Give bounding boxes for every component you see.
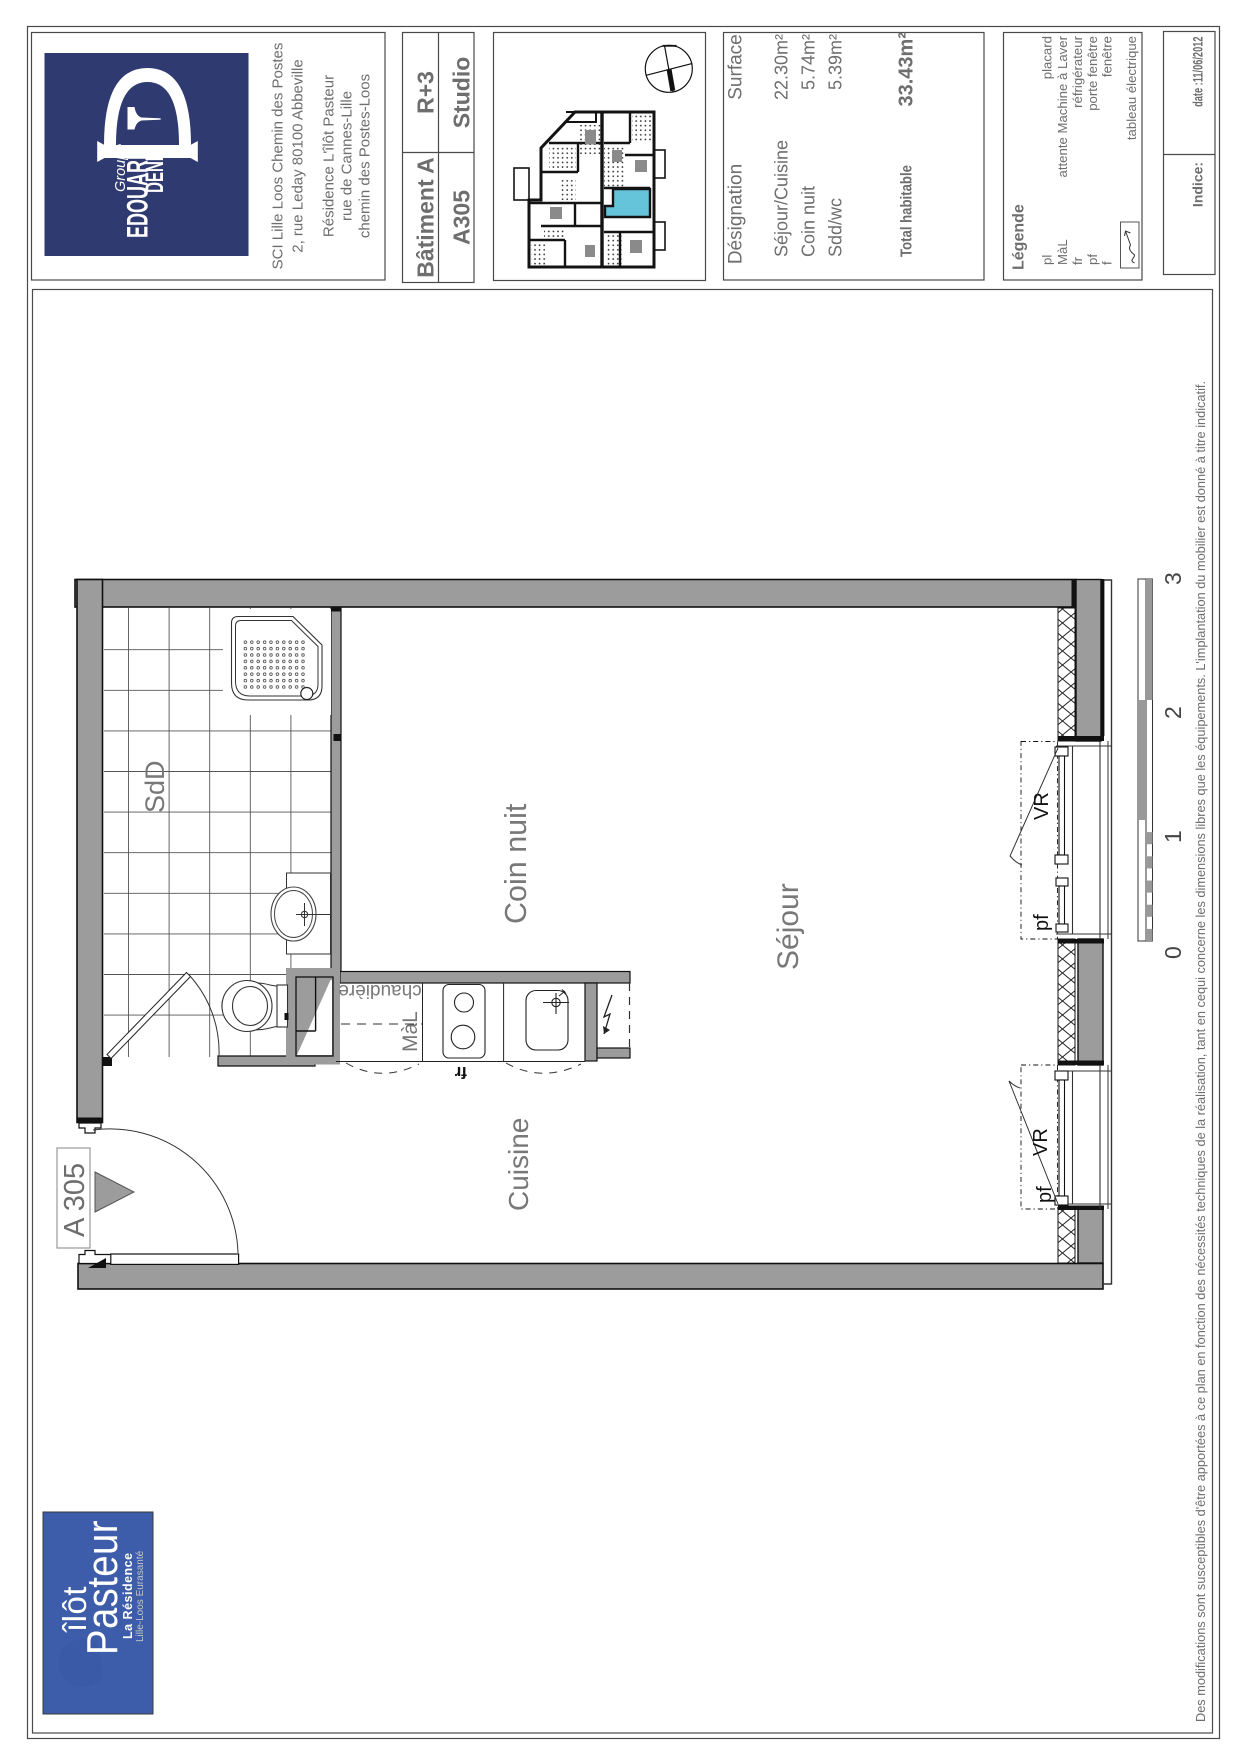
svg-text:Indice:: Indice: (1190, 162, 1206, 207)
svg-text:Sdd/wc: Sdd/wc (826, 198, 846, 257)
svg-text:réfrigérateur: réfrigérateur (1070, 35, 1085, 107)
svg-text:Désignation: Désignation (726, 164, 747, 264)
svg-text:SdD: SdD (140, 760, 170, 813)
svg-text:fr: fr (454, 1063, 467, 1082)
svg-text:SCI Lille Loos Chemin des Post: SCI Lille Loos Chemin des Postes (270, 43, 287, 270)
svg-text:33.43m²: 33.43m² (896, 32, 918, 107)
svg-text:pf: pf (1034, 1186, 1056, 1203)
svg-text:fr: fr (1070, 256, 1085, 265)
svg-text:chemin des Postes-Loos: chemin des Postes-Loos (357, 74, 374, 238)
svg-text:Coin nuit: Coin nuit (499, 803, 533, 924)
svg-text:placard: placard (1040, 36, 1055, 79)
svg-text:5.39m²: 5.39m² (826, 34, 846, 90)
svg-text:A 305: A 305 (59, 1163, 91, 1237)
svg-text:pf: pf (1085, 254, 1100, 265)
svg-text:Bâtiment A: Bâtiment A (413, 157, 439, 278)
svg-text:Studio: Studio (449, 57, 475, 129)
svg-text:rue de Cannes-Lille: rue de Cannes-Lille (339, 91, 356, 221)
svg-text:0: 0 (1160, 946, 1186, 959)
svg-text:R+3: R+3 (413, 71, 439, 114)
svg-text:VR: VR (1031, 792, 1053, 820)
svg-text:1: 1 (1160, 830, 1186, 843)
svg-text:MàL: MàL (1055, 239, 1070, 265)
svg-text:Des modifications sont suscept: Des modifications sont susceptibles d'êt… (1193, 381, 1208, 1722)
svg-text:Résidence L'îlôt Pasteur: Résidence L'îlôt Pasteur (321, 75, 338, 237)
svg-text:date :11/06/2012: date :11/06/2012 (1190, 36, 1207, 107)
svg-text:chaudière: chaudière (338, 980, 421, 1001)
svg-text:porte fenêtre: porte fenêtre (1085, 36, 1100, 111)
svg-text:f: f (1100, 261, 1115, 265)
svg-text:2: 2 (1160, 706, 1186, 719)
svg-text:3: 3 (1160, 572, 1186, 585)
svg-text:Séjour: Séjour (772, 883, 805, 970)
svg-text:22.30m²: 22.30m² (772, 34, 792, 100)
svg-text:Séjour/Cuisine: Séjour/Cuisine (772, 140, 792, 257)
svg-text:attente Machine à Laver: attente Machine à Laver (1055, 35, 1070, 177)
svg-text:Lille-Loos Eurasanté: Lille-Loos Eurasanté (135, 1550, 146, 1642)
svg-text:VR: VR (1030, 1128, 1052, 1156)
svg-text:Légende: Légende (1011, 204, 1028, 270)
svg-text:DENIS: DENIS (141, 147, 169, 193)
svg-text:Coin nuit: Coin nuit (799, 186, 819, 257)
svg-text:Pasteur: Pasteur (78, 1520, 127, 1655)
svg-text:A305: A305 (449, 190, 475, 245)
svg-text:pl: pl (1040, 255, 1055, 265)
svg-text:La Résidence: La Résidence (121, 1552, 135, 1639)
svg-text:Cuisine: Cuisine (503, 1118, 534, 1211)
svg-text:tableau électrique: tableau électrique (1124, 36, 1139, 140)
svg-text:2, rue Leday 80100 Abbeville: 2, rue Leday 80100 Abbeville (290, 59, 307, 252)
svg-text:Total habitable: Total habitable (899, 165, 916, 257)
svg-text:MàL: MàL (399, 1011, 422, 1052)
svg-text:5.74m²: 5.74m² (799, 34, 819, 90)
svg-text:pf: pf (1031, 914, 1053, 931)
svg-text:fenêtre: fenêtre (1100, 36, 1115, 77)
svg-text:Surface: Surface (726, 34, 747, 99)
